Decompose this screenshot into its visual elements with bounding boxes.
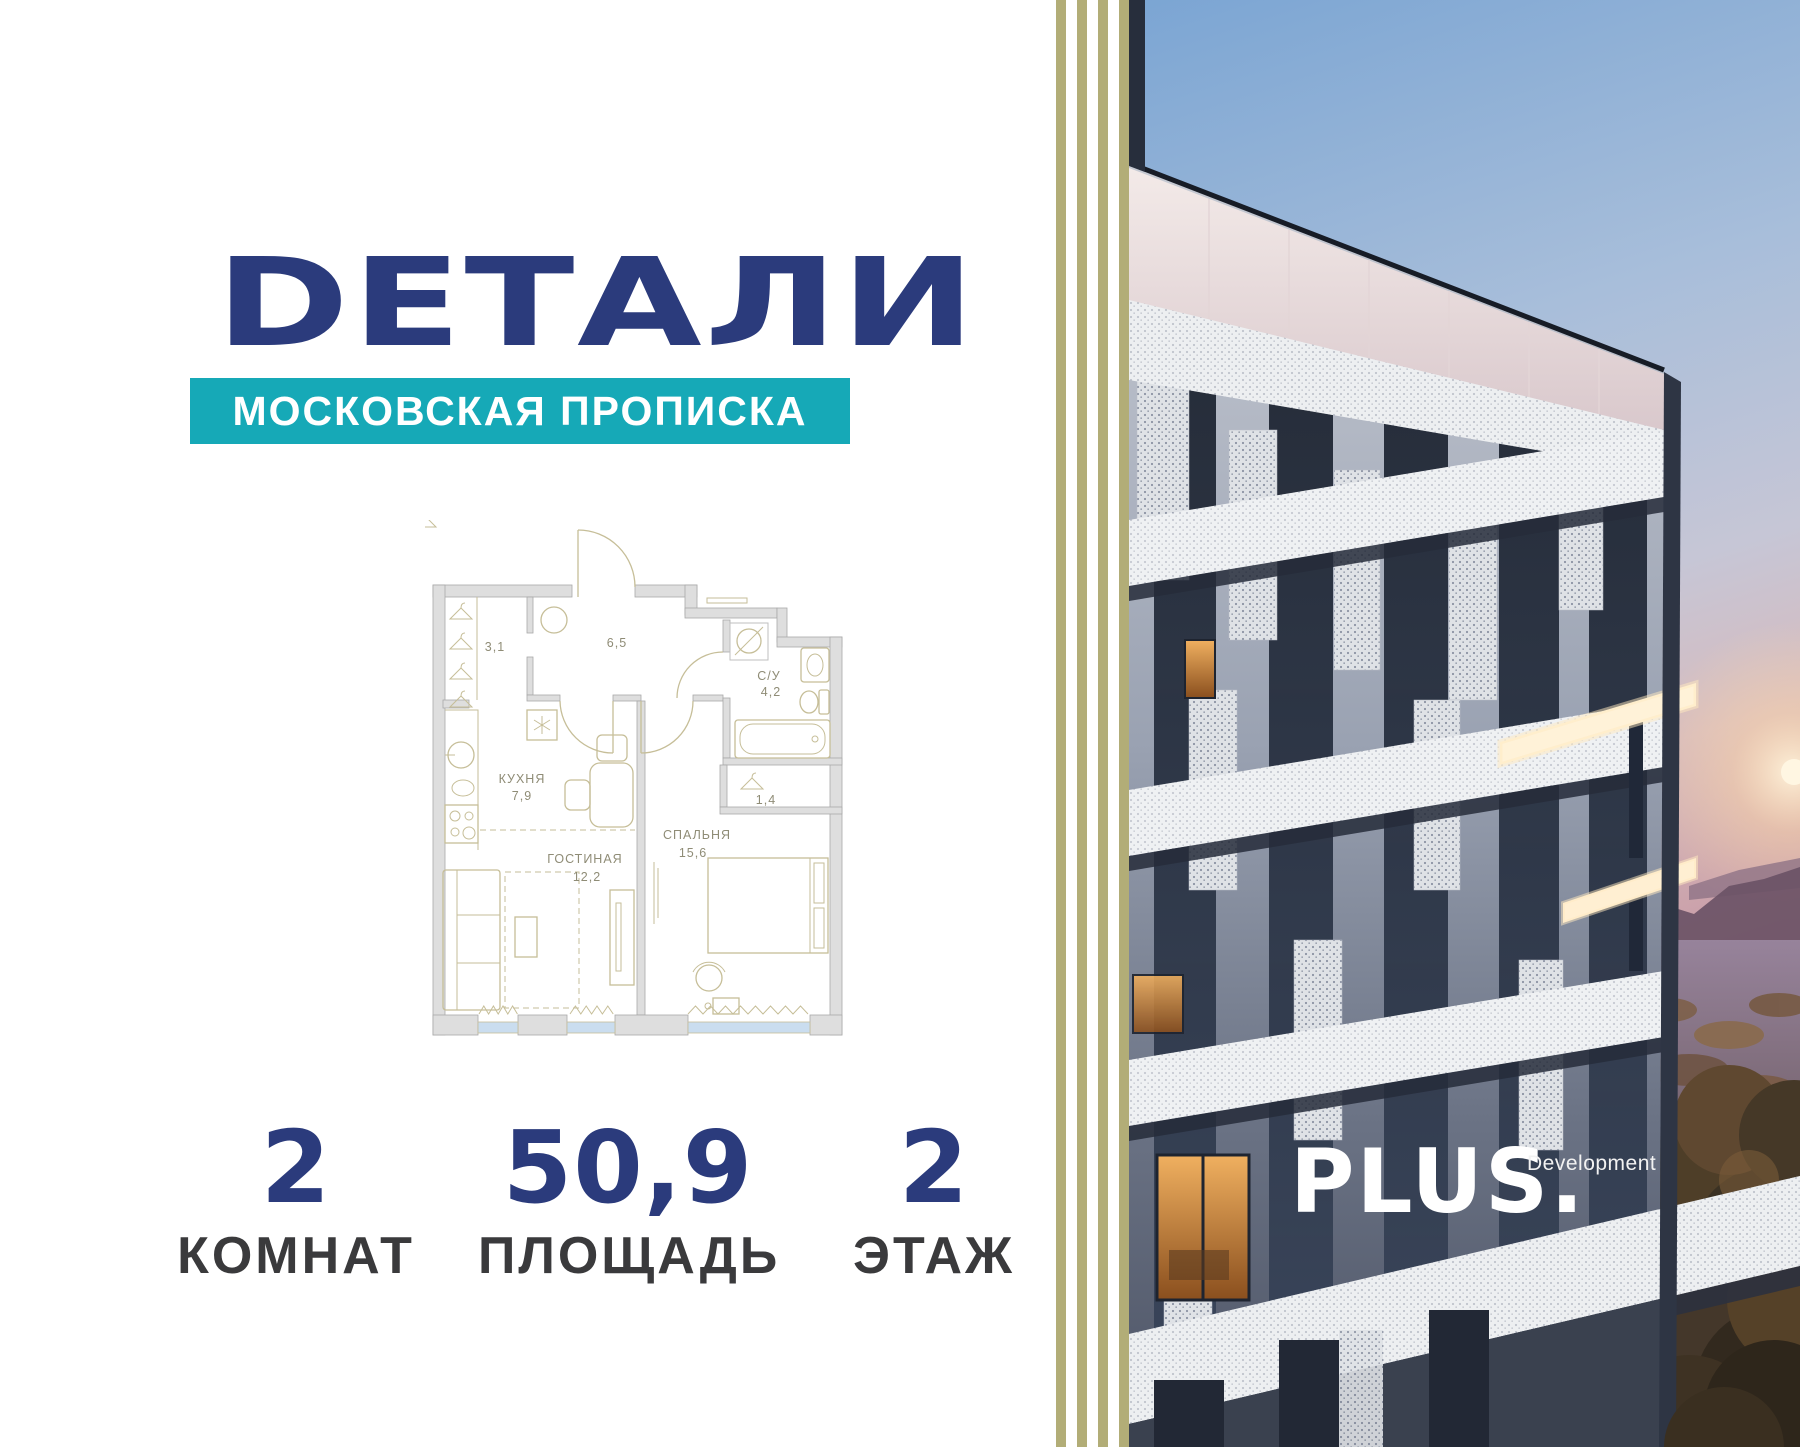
stat-floor-value: 2 (784, 1118, 1084, 1218)
basin-icon (452, 780, 474, 796)
hanger-icon (425, 520, 436, 527)
stripe (1098, 0, 1108, 1447)
tagline-text: МОСКОВСКАЯ ПРОПИСКА (232, 388, 807, 435)
stripe (1119, 0, 1129, 1447)
project-logo-text: DЕТАЛИ (216, 242, 979, 364)
stat-rooms-value: 2 (146, 1118, 446, 1218)
tagline-band: МОСКОВСКАЯ ПРОПИСКА (190, 378, 850, 444)
rug (505, 872, 579, 1008)
room-label-hall: 6,5 (607, 636, 627, 650)
room-label-wardrobe: 1,4 (756, 793, 776, 807)
entrance-door-arc (578, 530, 635, 587)
floor-plan-doors (560, 530, 723, 753)
stripe (1056, 0, 1066, 1447)
floor-plan: 3,1 6,5 С/У 4,2 КУХНЯ 7,9 1,4 ГОСТИНАЯ 1… (425, 520, 849, 1040)
snowflake-icon (534, 716, 550, 734)
stat-floor-label: ЭТАЖ (784, 1230, 1084, 1282)
living-door-arc (560, 701, 613, 753)
shelf (707, 598, 747, 603)
stat-rooms: 2 КОМНАТ (146, 1118, 446, 1282)
chair-icon (597, 735, 627, 761)
developer-descriptor: Development (1527, 1152, 1656, 1176)
sofa-icon (443, 870, 500, 1010)
radiator-icon (570, 1006, 613, 1014)
bathroom-door-arc (677, 652, 723, 698)
room-label-living: ГОСТИНАЯ (547, 852, 622, 866)
flat-card-poster: DЕТАЛИ МОСКОВСКАЯ ПРОПИСКА (0, 0, 1800, 1447)
room-label-bath: С/У (757, 669, 780, 683)
desk-chair-icon (696, 965, 722, 991)
corner-column (1129, 0, 1145, 172)
bedroom-door-arc (641, 701, 693, 753)
stat-area: 50,9 ПЛОЩАДЬ (478, 1118, 778, 1282)
stat-rooms-label: КОМНАТ (146, 1230, 446, 1282)
project-logo: DЕТАЛИ (185, 242, 1009, 364)
bedroom-fixtures (654, 858, 828, 1014)
bathtub-icon (735, 720, 830, 758)
radiator-icon (688, 1006, 808, 1014)
stat-floor: 2 ЭТАЖ (784, 1118, 1084, 1282)
room-area-bedroom: 15,6 (679, 846, 707, 860)
toilet-tank (819, 690, 829, 714)
room-label-closet: 3,1 (485, 640, 505, 654)
closet-hangers (450, 597, 477, 707)
tv-console-icon (610, 890, 634, 985)
table-icon (590, 763, 633, 827)
sink-icon (801, 648, 829, 682)
room-area-bath: 4,2 (761, 685, 781, 699)
flat-stats: 2 КОМНАТ 50,9 ПЛОЩАДЬ 2 ЭТАЖ (0, 1118, 1057, 1268)
stat-area-value: 50,9 (478, 1118, 778, 1218)
living-fixtures (443, 870, 634, 1010)
stat-area-label: ПЛОЩАДЬ (478, 1230, 778, 1282)
stool-icon (541, 607, 567, 633)
room-area-kitchen: 7,9 (512, 789, 532, 803)
room-label-bedroom: СПАЛЬНЯ (663, 828, 731, 842)
stripe (1077, 0, 1087, 1447)
coffee-table-icon (515, 917, 537, 957)
room-label-kitchen: КУХНЯ (499, 772, 546, 786)
room-area-living: 12,2 (573, 870, 601, 884)
chair-icon (565, 780, 590, 810)
toilet-icon (800, 691, 818, 713)
